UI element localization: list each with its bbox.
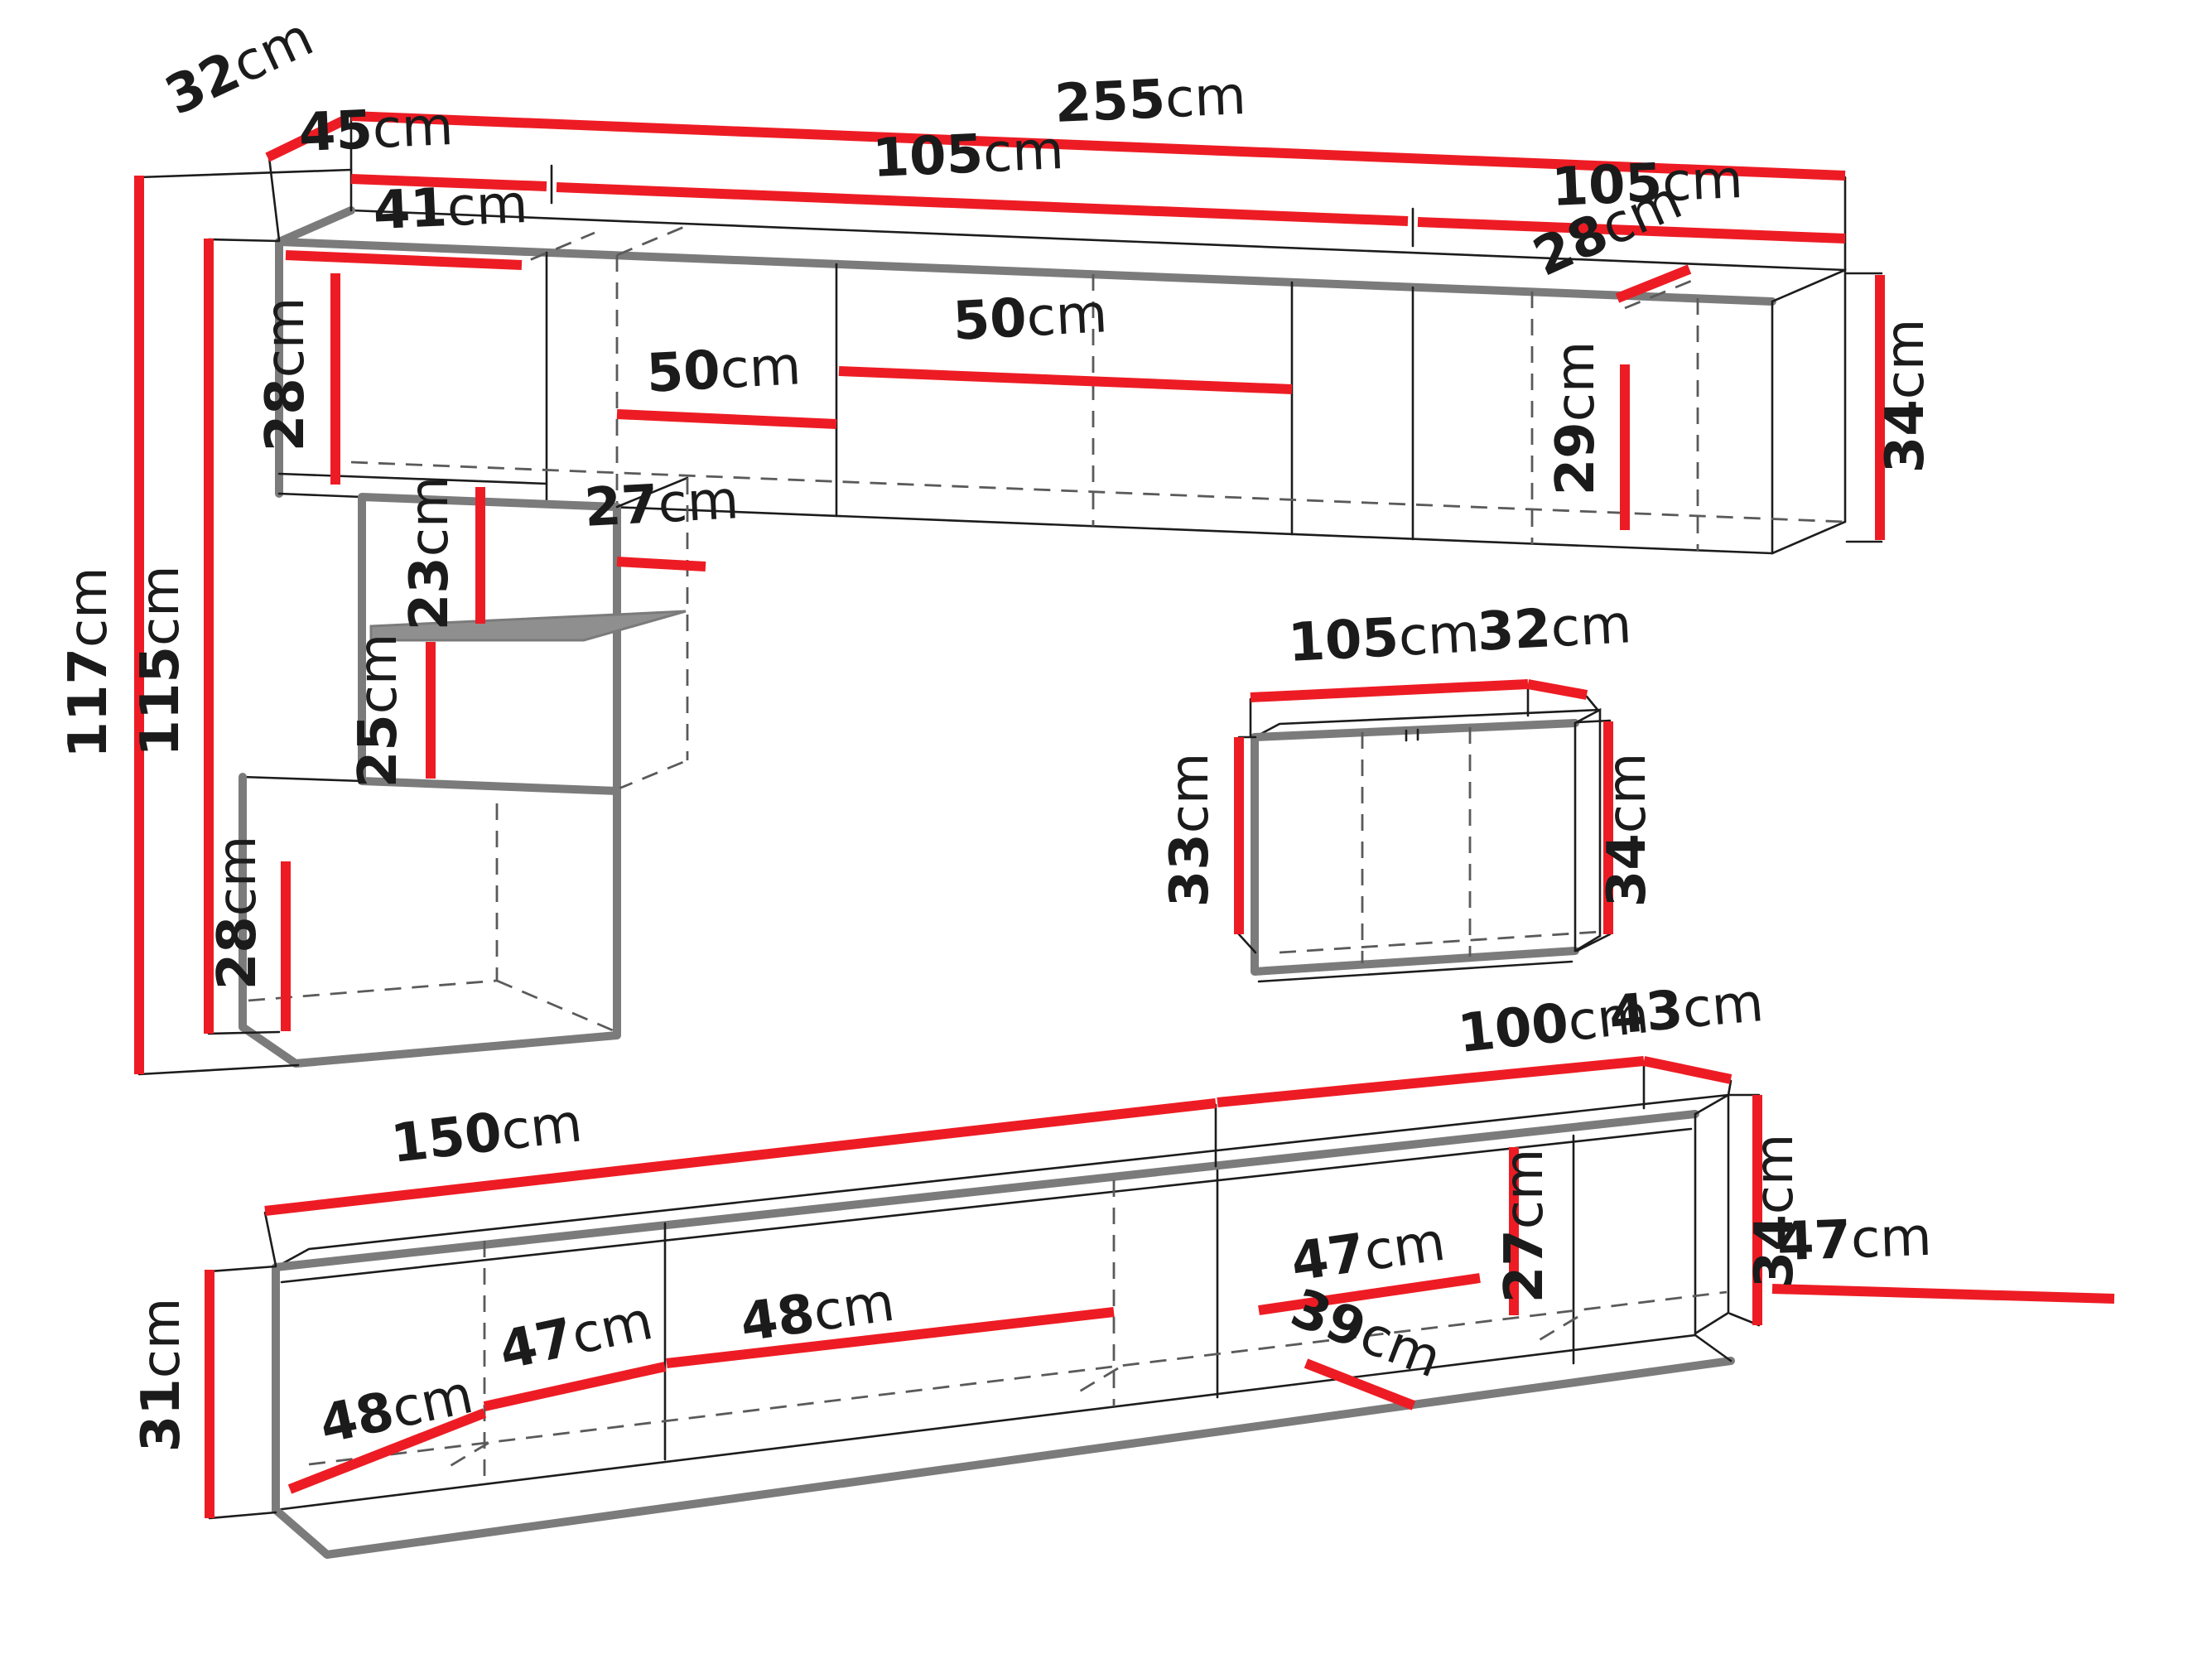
dim-label-41: 41cm: [372, 174, 529, 242]
dim-label-115: 115cm: [130, 565, 191, 756]
dim-label-23: 23cm: [399, 476, 460, 631]
dim-label-fc-105: 105cm: [1287, 603, 1482, 674]
dim-label-255: 255cm: [1053, 65, 1247, 135]
dim-label-fc-33: 33cm: [1159, 753, 1221, 908]
dim-label-tv-27: 27cm: [1494, 1149, 1555, 1304]
dim-label-105-1: 105cm: [871, 120, 1065, 190]
dim-label-50-1: 50cm: [645, 335, 802, 405]
dim-label-fc-34: 34cm: [1597, 753, 1658, 908]
dim-label-28-top-box: 28cm: [255, 297, 316, 452]
dim-line-27-mid: [617, 562, 706, 567]
dim-label-tv-31: 31cm: [131, 1298, 192, 1453]
dim-label-27-mid: 27cm: [583, 470, 740, 539]
furniture-dimension-diagram: 32cm 45cm 255cm 105cm 105cm 41cm 28cm 11…: [0, 0, 2212, 1659]
dim-label-25: 25cm: [348, 634, 409, 789]
dim-label-29: 29cm: [1545, 341, 1607, 496]
dim-label-fc-32: 32cm: [1476, 594, 1633, 663]
dim-label-28-bottom-box: 28cm: [207, 836, 268, 991]
dim-label-50-2: 50cm: [952, 283, 1109, 353]
dim-label-117: 117cm: [58, 567, 119, 758]
dim-label-tv-47-3: 47cm: [1776, 1207, 1933, 1273]
dim-label-34-row: 34cm: [1875, 319, 1936, 474]
dim-label-45: 45cm: [297, 96, 455, 164]
